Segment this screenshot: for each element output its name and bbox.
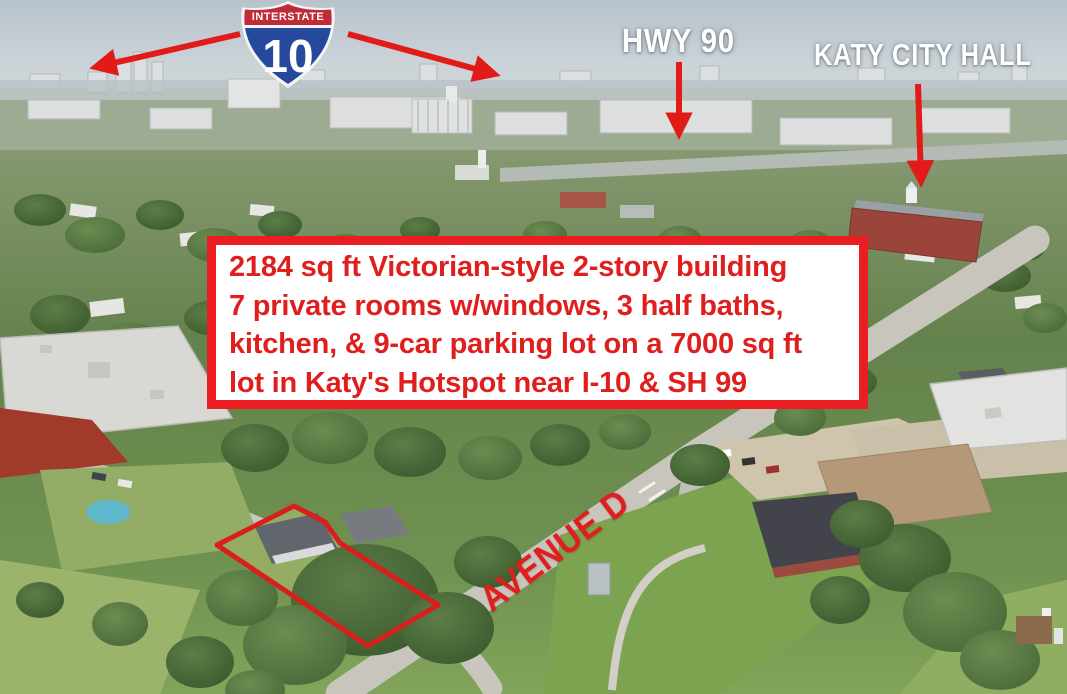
aerial-photo: INTERSTATE 10 HWY 90 KATY CITY HALL AVEN… [0,0,1067,694]
city-hall-arrow [918,84,921,181]
route-number: 10 [262,30,313,82]
hwy90-label: HWY 90 [622,22,735,60]
swimming-pool [86,500,130,524]
katy-city-hall-label: KATY CITY HALL [814,37,1032,73]
property-description-box: 2184 sq ft Victorian-style 2-story build… [207,236,868,409]
description-line-2: 7 private rooms w/windows, 3 half baths, [229,287,859,326]
description-line-3: kitchen, & 9-car parking lot on a 7000 s… [229,325,859,364]
pergola [1016,616,1052,644]
interstate-label: INTERSTATE [252,11,324,23]
description-line-4: lot in Katy's Hotspot near I-10 & SH 99 [229,364,859,403]
description-line-1: 2184 sq ft Victorian-style 2-story build… [229,248,859,287]
